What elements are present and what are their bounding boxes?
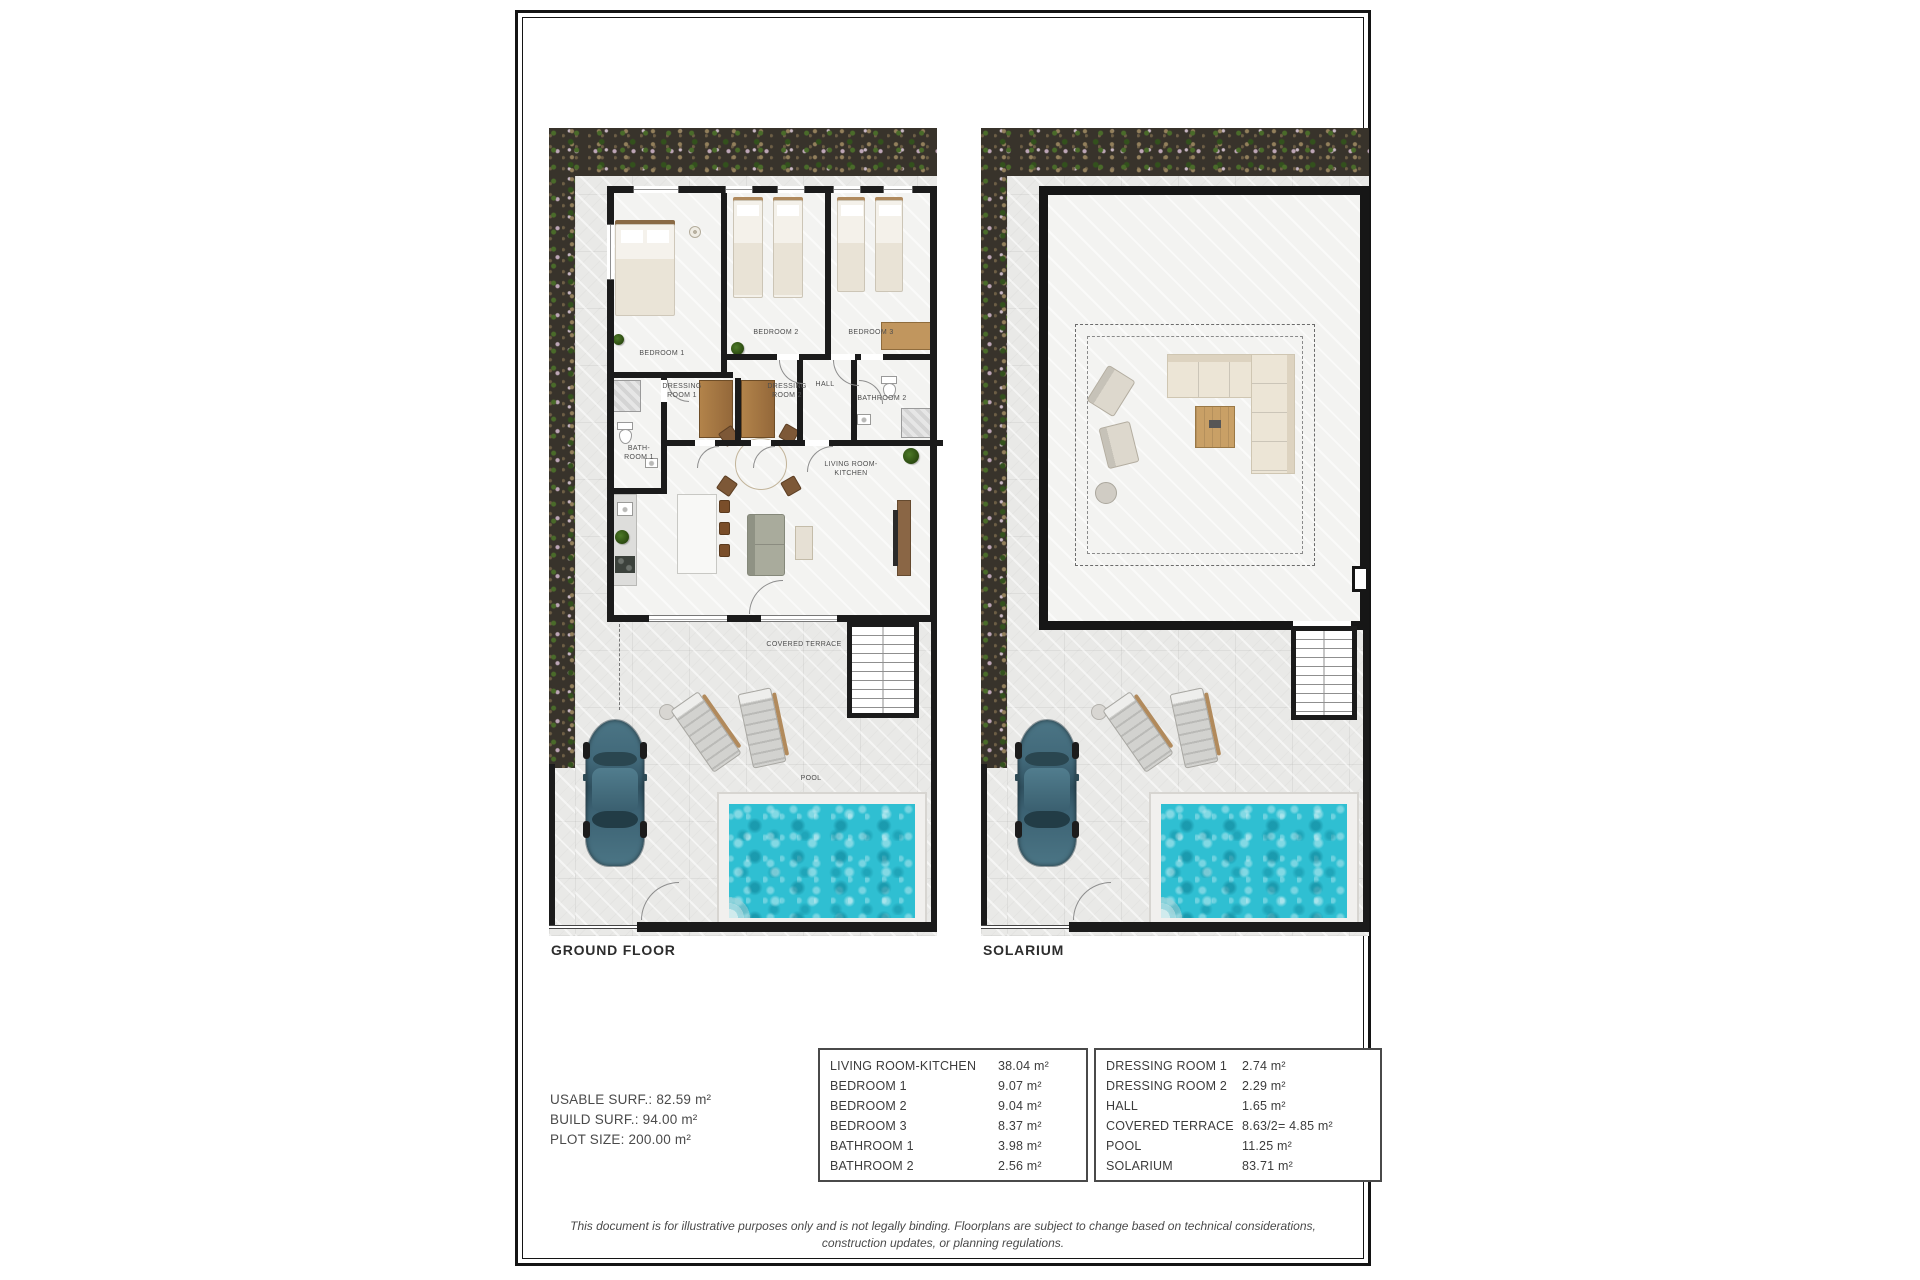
disclaimer-line2: construction updates, or planning regula…: [515, 1235, 1371, 1252]
bar-stool: [719, 522, 730, 535]
room-name: COVERED TERRACE: [1106, 1119, 1234, 1133]
boundary-wall: [931, 622, 937, 932]
room-label-bedroom1: BEDROOM 1: [639, 349, 684, 358]
room-area: 2.74 m²: [1242, 1059, 1286, 1073]
shower: [901, 408, 931, 438]
parapet-wall: [1360, 186, 1369, 630]
room-label-bedroom3: BEDROOM 3: [848, 328, 893, 337]
garden-strip-top: [981, 128, 1369, 176]
room-name: BATHROOM 2: [830, 1159, 914, 1173]
surface-summary: USABLE SURF.: 82.59 m² BUILD SURF.: 94.0…: [550, 1090, 711, 1150]
room-label-dressing2: DRESSING ROOM 2: [767, 382, 806, 400]
plant: [903, 448, 919, 464]
window: [777, 186, 805, 193]
table-row: DRESSING ROOM 12.74 m²: [1096, 1056, 1380, 1076]
car-rear-glass: [1025, 752, 1069, 766]
bar-stool: [719, 500, 730, 513]
tv: [893, 510, 898, 566]
room-name: LIVING ROOM-KITCHEN: [830, 1059, 976, 1073]
window: [883, 186, 913, 193]
tv-bench: [897, 500, 911, 576]
wall: [721, 186, 727, 378]
pouf: [1095, 482, 1117, 504]
single-bed: [773, 200, 803, 298]
car-windshield: [592, 811, 638, 828]
sofa: [747, 514, 785, 576]
solarium-plan: [981, 128, 1369, 936]
table-row: BATHROOM 22.56 m²: [820, 1156, 1086, 1176]
car-roof: [1024, 768, 1070, 812]
stairs: [1291, 626, 1357, 720]
window: [607, 224, 614, 280]
boundary-wall: [1363, 630, 1369, 932]
room-label-covered-terrace: COVERED TERRACE: [766, 640, 841, 649]
window: [833, 186, 861, 193]
coffee-table: [795, 526, 813, 560]
stove: [615, 556, 635, 573]
plant: [613, 334, 624, 345]
shower: [613, 380, 641, 412]
plot-size: PLOT SIZE: 200.00 m²: [550, 1130, 711, 1150]
stairs: [847, 622, 919, 718]
fence: [981, 925, 1069, 929]
parapet-wall: [1039, 186, 1048, 630]
ground-floor-plan: BEDROOM 1 BEDROOM 2 BEDROOM 3 DRESSING R…: [549, 128, 937, 936]
area-table-2: DRESSING ROOM 12.74 m² DRESSING ROOM 22.…: [1094, 1048, 1382, 1182]
parapet-wall: [1039, 186, 1369, 195]
single-bed: [733, 200, 763, 298]
table-lamp: [689, 226, 701, 238]
car-wheel: [1072, 742, 1079, 759]
table-row: LIVING ROOM-KITCHEN38.04 m²: [820, 1056, 1086, 1076]
tray: [1209, 420, 1221, 428]
corner-sofa: [1251, 354, 1295, 474]
car-mirror: [643, 774, 647, 781]
room-label-pool: POOL: [801, 774, 822, 783]
car-illustration: [1015, 718, 1079, 868]
window: [633, 186, 679, 193]
sliding-door: [761, 615, 837, 622]
room-name: HALL: [1106, 1099, 1138, 1113]
room-label-hall: HALL: [816, 380, 835, 389]
wall: [721, 354, 937, 360]
car-roof: [592, 768, 638, 812]
door-opening: [805, 440, 829, 446]
plant: [615, 530, 629, 544]
solarium-caption: SOLARIUM: [983, 942, 1064, 958]
room-name: BEDROOM 2: [830, 1099, 907, 1113]
car-windshield: [1024, 811, 1070, 828]
pool-steps: [1161, 888, 1191, 918]
floorplan-document: BEDROOM 1 BEDROOM 2 BEDROOM 3 DRESSING R…: [0, 0, 1920, 1280]
wall: [735, 378, 741, 446]
ground-floor-caption: GROUND FLOOR: [551, 942, 676, 958]
car-wheel: [1072, 821, 1079, 838]
terrace-boundary-dashed: [619, 624, 621, 710]
car-illustration: [583, 718, 647, 868]
room-name: DRESSING ROOM 1: [1106, 1059, 1227, 1073]
car-rear-glass: [593, 752, 637, 766]
room-name: DRESSING ROOM 2: [1106, 1079, 1227, 1093]
room-area: 3.98 m²: [998, 1139, 1042, 1153]
garden-strip-left: [981, 176, 1007, 768]
door-opening: [695, 440, 715, 446]
car-wheel: [640, 742, 647, 759]
boundary-wall: [549, 764, 555, 925]
room-name: BEDROOM 3: [830, 1119, 907, 1133]
table-row: SOLARIUM83.71 m²: [1096, 1156, 1380, 1176]
car-wheel: [640, 821, 647, 838]
toilet: [617, 422, 633, 444]
table-row: BEDROOM 19.07 m²: [820, 1076, 1086, 1096]
area-table-1: LIVING ROOM-KITCHEN38.04 m² BEDROOM 19.0…: [818, 1048, 1088, 1182]
pool: [1161, 804, 1347, 918]
build-surface: BUILD SURF.: 94.00 m²: [550, 1110, 711, 1130]
room-name: BATHROOM 1: [830, 1139, 914, 1153]
bar-stool: [719, 544, 730, 557]
boundary-wall: [637, 922, 937, 932]
room-label-living: LIVING ROOM-KITCHEN: [808, 460, 894, 478]
room-area: 83.71 m²: [1242, 1159, 1293, 1173]
pool: [729, 804, 915, 918]
room-label-dressing1: DRESSING ROOM 1: [662, 382, 701, 400]
chimney: [1352, 566, 1369, 592]
table-row: POOL11.25 m²: [1096, 1136, 1380, 1156]
boundary-wall: [1069, 922, 1369, 932]
room-area: 38.04 m²: [998, 1059, 1049, 1073]
room-area: 9.04 m²: [998, 1099, 1042, 1113]
room-name: POOL: [1106, 1139, 1142, 1153]
fence: [549, 925, 637, 929]
single-bed: [837, 200, 865, 292]
door-opening: [861, 354, 883, 360]
table-row: DRESSING ROOM 22.29 m²: [1096, 1076, 1380, 1096]
wall: [930, 186, 937, 622]
car-mirror: [1015, 774, 1019, 781]
car-wheel: [583, 742, 590, 759]
room-label-bathroom1: BATH- ROOM 1: [624, 444, 654, 462]
wall: [825, 186, 831, 360]
disclaimer-line1: This document is for illustrative purpos…: [515, 1218, 1371, 1235]
table-row: BEDROOM 38.37 m²: [820, 1116, 1086, 1136]
car-wheel: [1015, 821, 1022, 838]
car-mirror: [583, 774, 587, 781]
car-wheel: [1015, 742, 1022, 759]
car-wheel: [583, 821, 590, 838]
car-mirror: [1075, 774, 1079, 781]
room-area: 2.29 m²: [1242, 1079, 1286, 1093]
door-opening: [751, 440, 771, 446]
washbasin: [857, 414, 871, 425]
garden-strip-top: [549, 128, 937, 176]
room-area: 11.25 m²: [1242, 1139, 1292, 1153]
room-area: 8.63/2= 4.85 m²: [1242, 1119, 1333, 1133]
table-row: HALL1.65 m²: [1096, 1096, 1380, 1116]
wall: [607, 488, 667, 494]
room-label-bedroom2: BEDROOM 2: [753, 328, 798, 337]
table-row: BEDROOM 29.04 m²: [820, 1096, 1086, 1116]
room-area: 1.65 m²: [1242, 1099, 1286, 1113]
room-area: 9.07 m²: [998, 1079, 1042, 1093]
room-area: 2.56 m²: [998, 1159, 1042, 1173]
pool-steps: [729, 888, 759, 918]
kitchen-sink: [617, 502, 633, 516]
double-bed: [615, 224, 675, 316]
sliding-door: [649, 615, 727, 622]
usable-surface: USABLE SURF.: 82.59 m²: [550, 1090, 711, 1110]
table-row: COVERED TERRACE8.63/2= 4.85 m²: [1096, 1116, 1380, 1136]
room-label-bathroom2: BATHROOM 2: [857, 394, 906, 403]
kitchen-island: [677, 494, 717, 574]
single-bed: [875, 200, 903, 292]
wall: [607, 372, 733, 378]
boundary-wall: [981, 764, 987, 925]
room-area: 8.37 m²: [998, 1119, 1042, 1133]
garden-strip-left: [549, 176, 575, 768]
room-name: BEDROOM 1: [830, 1079, 907, 1093]
table-row: BATHROOM 13.98 m²: [820, 1136, 1086, 1156]
window: [725, 186, 753, 193]
disclaimer: This document is for illustrative purpos…: [515, 1218, 1371, 1252]
room-name: SOLARIUM: [1106, 1159, 1173, 1173]
